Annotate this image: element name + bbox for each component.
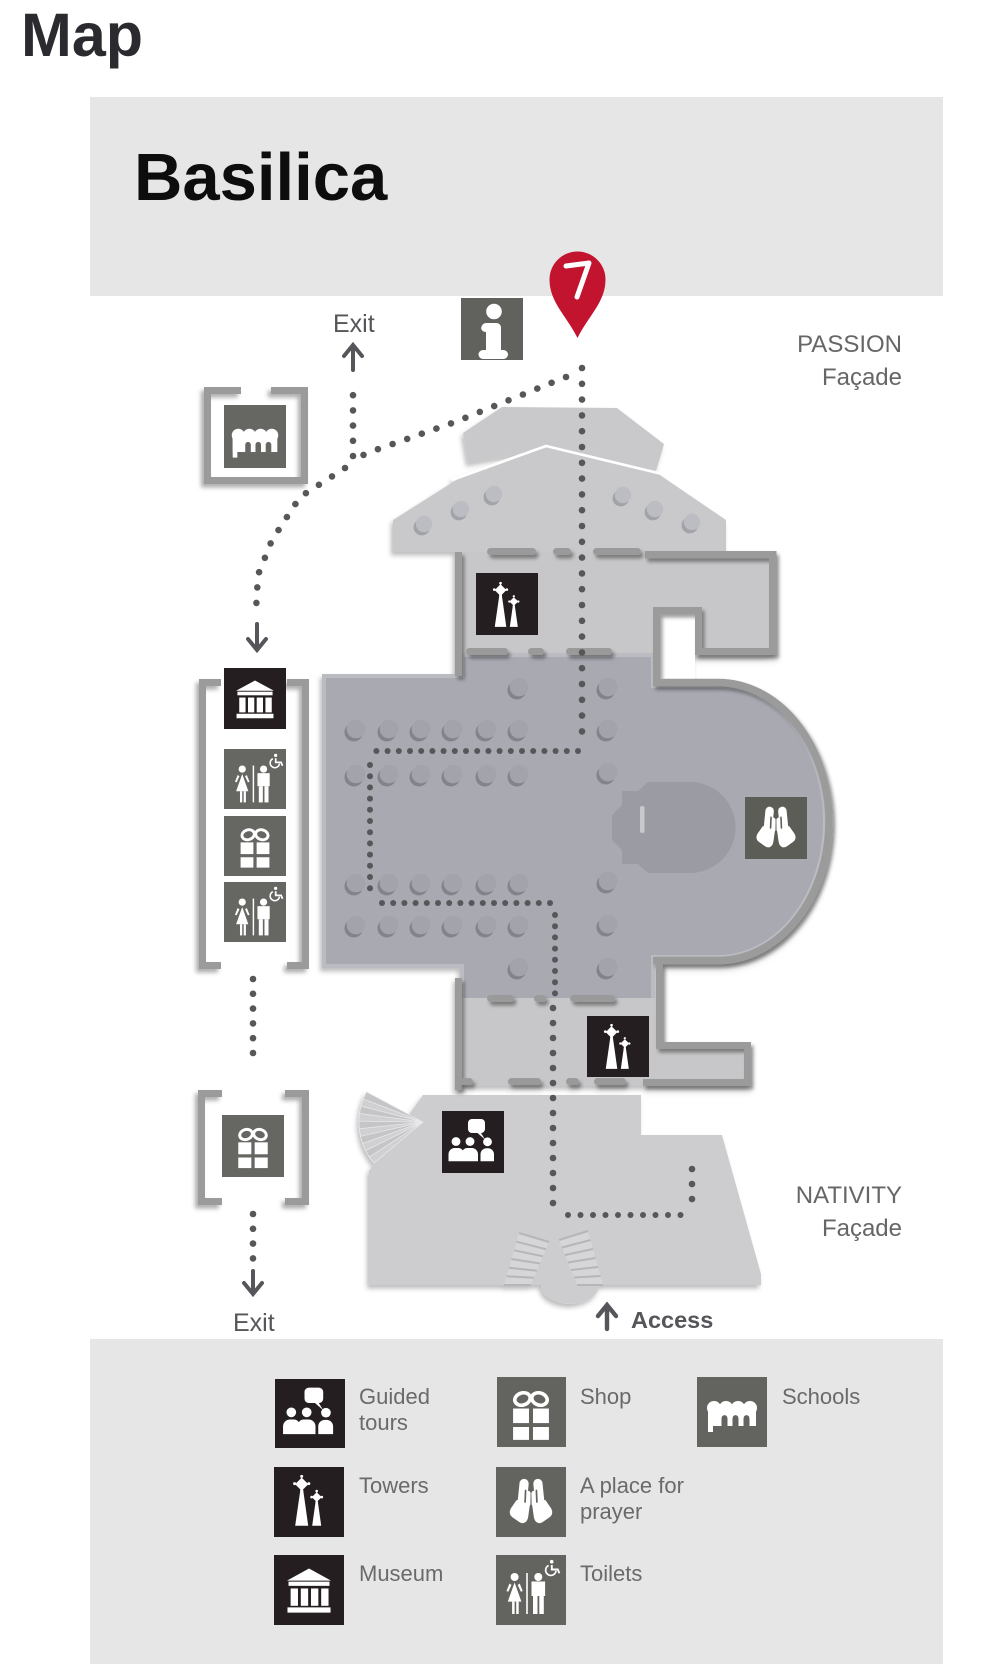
svg-text:prayer: prayer: [580, 1499, 642, 1524]
svg-text:Towers: Towers: [359, 1473, 429, 1498]
svg-text:Guided: Guided: [359, 1384, 430, 1409]
svg-text:Façade: Façade: [822, 364, 902, 391]
svg-text:Exit: Exit: [333, 310, 375, 338]
svg-text:Façade: Façade: [822, 1215, 902, 1242]
svg-text:Shop: Shop: [580, 1384, 631, 1409]
svg-text:NATIVITY: NATIVITY: [796, 1182, 902, 1209]
svg-text:Map: Map: [21, 1, 143, 69]
svg-text:Exit: Exit: [233, 1309, 275, 1337]
svg-text:Toilets: Toilets: [580, 1561, 642, 1586]
svg-text:Museum: Museum: [359, 1561, 443, 1586]
svg-text:A place for: A place for: [580, 1473, 684, 1498]
svg-text:Schools: Schools: [782, 1384, 860, 1409]
svg-text:Basilica: Basilica: [134, 140, 388, 215]
svg-text:tours: tours: [359, 1410, 408, 1435]
svg-text:PASSION: PASSION: [797, 331, 902, 358]
svg-text:Access: Access: [631, 1307, 713, 1333]
